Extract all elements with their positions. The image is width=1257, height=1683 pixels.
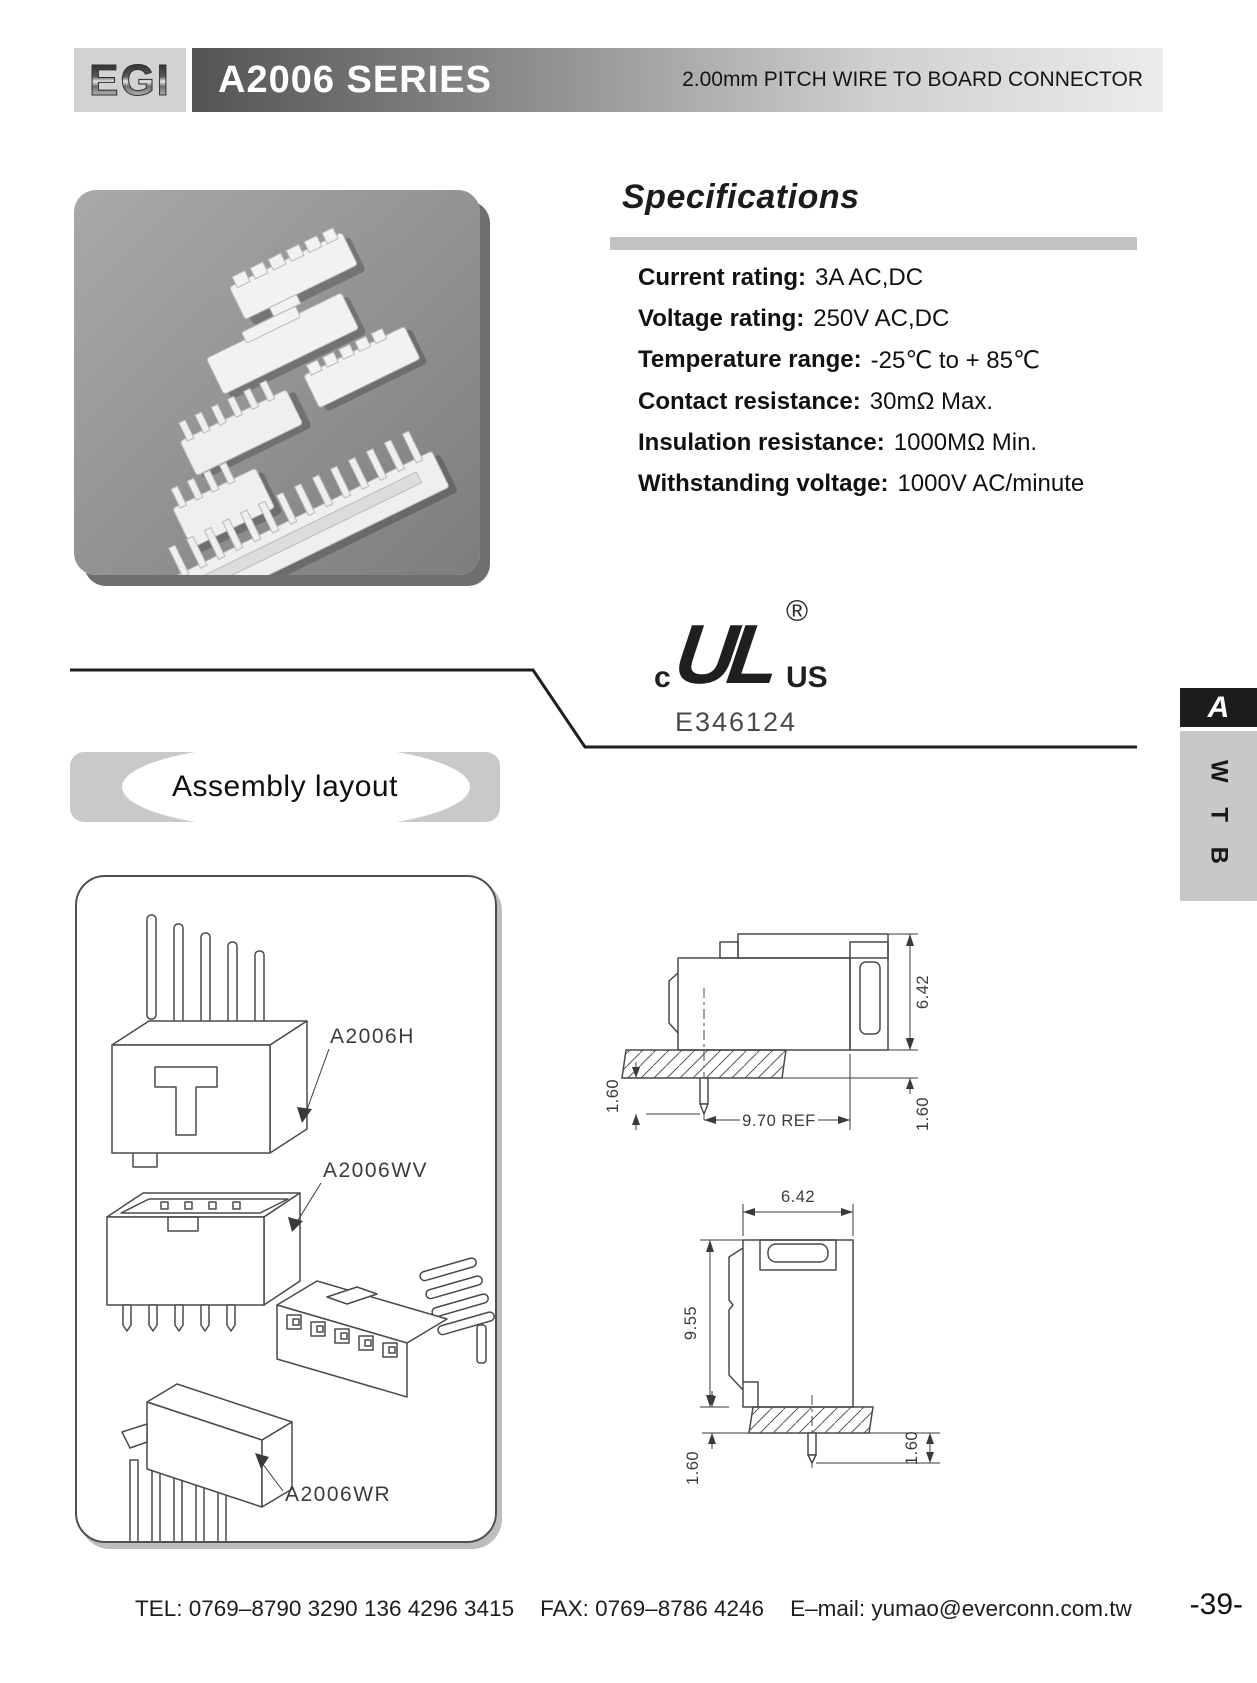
page-number: -39- — [1190, 1588, 1243, 1622]
footer-contact: TEL: 0769–8790 3290 136 4296 3415 FAX: 0… — [135, 1596, 1132, 1622]
svg-text:1.60: 1.60 — [684, 1451, 702, 1485]
svg-text:1.60: 1.60 — [604, 1079, 622, 1113]
spec-label: Insulation resistance: — [638, 429, 885, 457]
dim-front-pin-protrusion: 1.60 — [816, 1431, 940, 1465]
spec-value: -25℃ to + 85℃ — [871, 346, 1040, 375]
specifications-list: Current rating: 3A AC,DC Voltage rating:… — [638, 264, 1148, 511]
product-photo — [74, 190, 480, 575]
dim-front-board-thickness: 1.60 — [684, 1391, 749, 1485]
spec-label: Temperature range: — [638, 346, 862, 375]
spec-value: 250V AC,DC — [813, 305, 949, 333]
ul-file-number: E346124 — [675, 707, 797, 737]
side-view-dimension-drawing: 6.42 1.60 1.60 9.70 REF — [588, 858, 1033, 1150]
spec-value: 30mΩ Max. — [870, 388, 993, 416]
footer-tel: TEL: 0769–8790 3290 136 4296 3415 — [135, 1596, 514, 1622]
svg-text:6.42: 6.42 — [914, 975, 932, 1009]
spec-label: Contact resistance: — [638, 388, 861, 416]
wire-housing-drawing — [277, 1257, 495, 1397]
connector-photo-graphic — [74, 190, 480, 575]
ul-certification-mark: UL c US ® E346124 — [640, 583, 840, 748]
spec-label: Current rating: — [638, 264, 806, 292]
front-view-dimension-drawing: 6.42 9.55 — [640, 1150, 970, 1495]
section-divider-line — [60, 655, 1150, 755]
section-index-tab: A — [1180, 688, 1257, 727]
spec-row-temperature-range: Temperature range: -25℃ to + 85℃ — [638, 346, 1148, 375]
assembly-layout-title: Assembly layout — [70, 752, 500, 822]
a2006wv-label: A2006WV — [323, 1159, 428, 1182]
assembly-layout-header: Assembly layout — [70, 752, 500, 822]
spec-value: 3A AC,DC — [815, 264, 923, 292]
spec-label: Withstanding voltage: — [638, 470, 888, 498]
spec-row-withstanding-voltage: Withstanding voltage: 1000V AC/minute — [638, 470, 1148, 498]
egi-logo-graphic: EGI — [78, 52, 182, 108]
category-tab-wtb: W T B — [1180, 731, 1257, 901]
svg-text:1.60: 1.60 — [903, 1431, 921, 1465]
dim-front-height: 9.55 — [682, 1240, 743, 1407]
specifications-title: Specifications — [622, 178, 860, 217]
title-bar: A2006 SERIES 2.00mm PITCH WIRE TO BOARD … — [192, 48, 1163, 112]
svg-text:6.42: 6.42 — [781, 1188, 815, 1206]
svg-text:9.55: 9.55 — [682, 1306, 700, 1340]
ul-prefix-c: c — [654, 661, 671, 694]
specifications-divider-bar — [610, 237, 1137, 250]
footer-fax: FAX: 0769–8786 4246 — [540, 1596, 764, 1622]
svg-text:1.60: 1.60 — [914, 1097, 932, 1131]
spec-row-voltage-rating: Voltage rating: 250V AC,DC — [638, 305, 1148, 333]
assembly-drawings: A2006H — [77, 877, 495, 1541]
spec-label: Voltage rating: — [638, 305, 804, 333]
datasheet-page: EGI A2006 SERIES 2.00mm PITCH WIRE TO BO… — [0, 0, 1257, 1683]
a2006h-label: A2006H — [330, 1025, 415, 1048]
spec-row-contact-resistance: Contact resistance: 30mΩ Max. — [638, 388, 1148, 416]
footer-email: E–mail: yumao@everconn.com.tw — [790, 1596, 1132, 1622]
registered-trademark-icon: ® — [786, 595, 808, 628]
dim-side-height: 6.42 — [888, 934, 932, 1050]
a2006wr-label: A2006WR — [285, 1483, 391, 1506]
spec-value: 1000MΩ Min. — [894, 429, 1037, 457]
ul-suffix-us: US — [786, 661, 828, 694]
logo-text: EGI — [89, 56, 171, 105]
dim-front-width: 6.42 — [743, 1188, 853, 1236]
ul-logo-icon: UL c US ® E346124 — [640, 583, 840, 748]
spec-row-current-rating: Current rating: 3A AC,DC — [638, 264, 1148, 292]
company-logo: EGI — [74, 48, 186, 112]
spec-row-insulation-resistance: Insulation resistance: 1000MΩ Min. — [638, 429, 1148, 457]
ul-monogram: UL — [669, 607, 782, 701]
spec-value: 1000V AC/minute — [897, 470, 1084, 498]
svg-text:9.70 REF: 9.70 REF — [742, 1112, 816, 1130]
page-subtitle: 2.00mm PITCH WIRE TO BOARD CONNECTOR — [682, 68, 1143, 92]
a2006h-drawing: A2006H — [112, 915, 415, 1167]
series-title: A2006 SERIES — [218, 59, 492, 102]
a2006wr-drawing: A2006WR — [122, 1384, 391, 1541]
assembly-drawing-box: A2006H — [75, 875, 497, 1543]
